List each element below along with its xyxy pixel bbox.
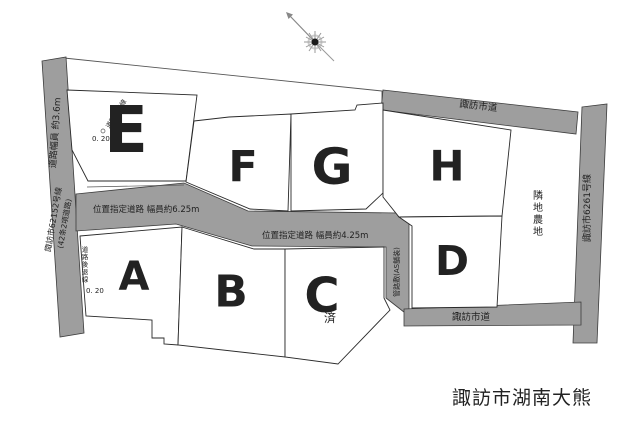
setback-lower-label: 道路後退線 [80, 245, 88, 284]
bottom-road-label: 諏訪市道 [452, 311, 491, 323]
plot-d-letter: D [435, 237, 469, 285]
plot-b-letter: B [214, 267, 248, 318]
plot-g-letter: G [311, 138, 352, 196]
middle-road-lower-label: 位置指定道路 幅員約4.25m [262, 230, 368, 241]
plot-a-letter: A [119, 254, 150, 300]
adjacent-farmland-label: 隣地農地 [531, 189, 543, 238]
setback-lower-offset: 0. 20 [86, 287, 104, 295]
conduit-strip-label: 管路敷(AS舗装) [392, 247, 401, 297]
subdivision-map: 道路幅員 約3.6m 諏訪市62152号線 (42条2項道路) 諏訪市道 諏訪市… [0, 0, 640, 440]
compass-north-icon [286, 12, 334, 61]
watermark-text: 諏訪市湖南大熊 [452, 387, 592, 409]
plot-e-letter: E [104, 94, 148, 168]
plot-c-sold-mark: 済 [324, 310, 336, 325]
plot-h-letter: H [429, 142, 464, 191]
map-drawing: 道路幅員 約3.6m 諏訪市62152号線 (42条2項道路) 諏訪市道 諏訪市… [0, 0, 640, 440]
middle-road-upper-label: 位置指定道路 幅員約6.25m [93, 204, 199, 215]
right-road-name-label: 諏訪市6261号線 [581, 174, 593, 242]
plot-f-letter: F [228, 142, 257, 192]
